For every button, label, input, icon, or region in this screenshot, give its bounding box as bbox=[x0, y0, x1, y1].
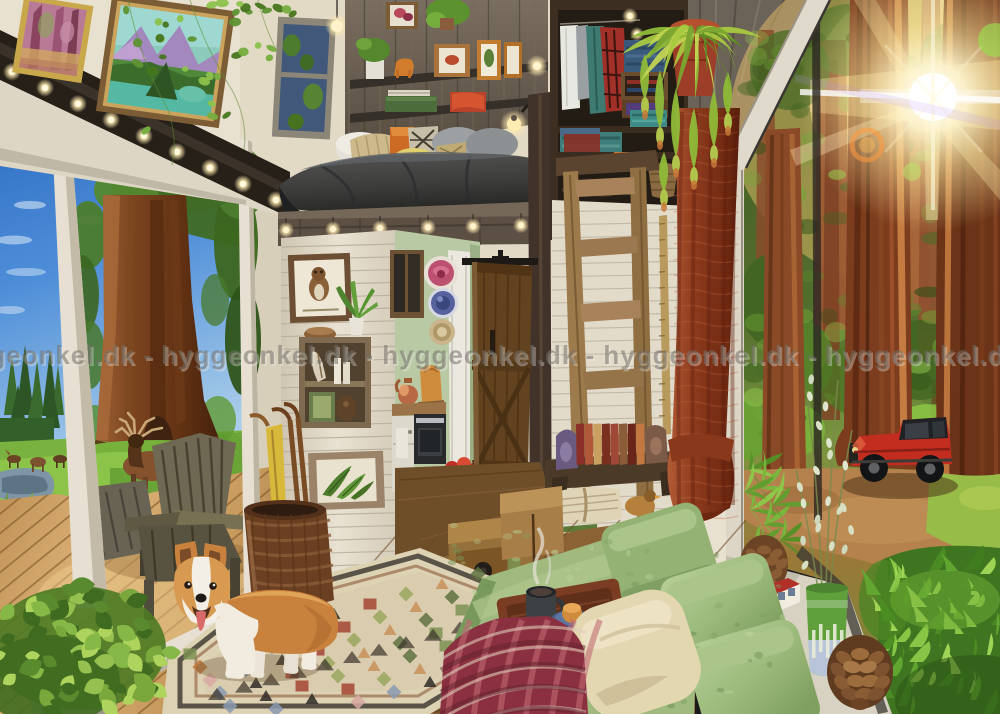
svg-text:hyggeonkel.dk - hyggeonkel.dk: hyggeonkel.dk - hyggeonkel.dk - hyggeonk… bbox=[0, 340, 1000, 370]
